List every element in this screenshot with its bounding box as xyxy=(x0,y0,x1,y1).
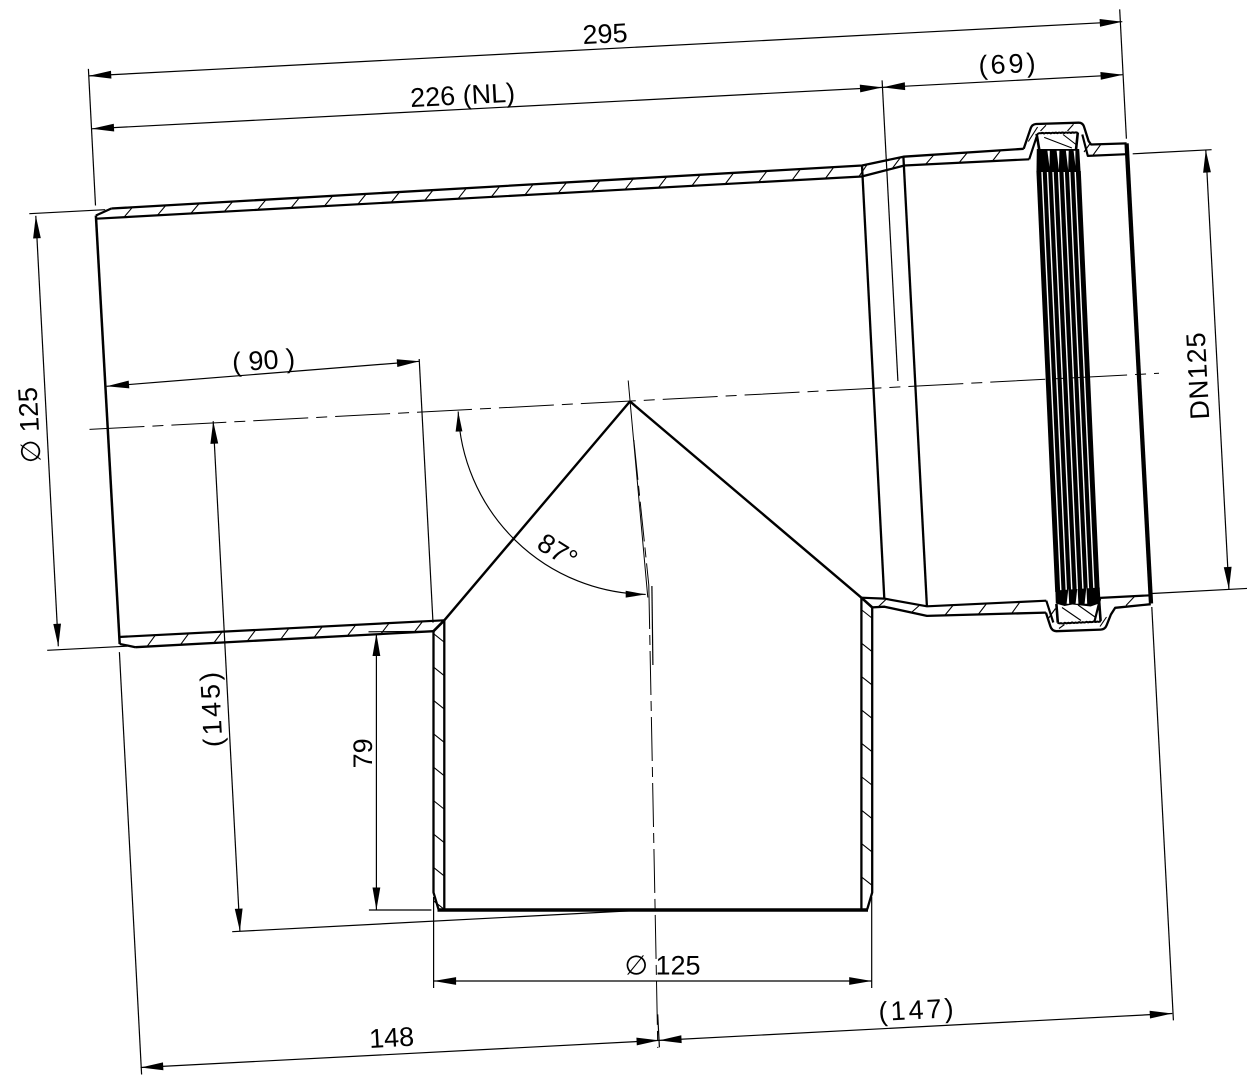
svg-text:(147): (147) xyxy=(878,993,957,1027)
svg-text:79: 79 xyxy=(348,738,378,768)
svg-text:( 90 ): ( 90 ) xyxy=(231,343,296,377)
svg-text:226 (NL): 226 (NL) xyxy=(409,78,515,113)
svg-text:∅ 125: ∅ 125 xyxy=(624,951,700,981)
svg-text:148: 148 xyxy=(368,1022,415,1054)
svg-text:∅ 125: ∅ 125 xyxy=(13,386,47,464)
svg-text:(145): (145) xyxy=(194,668,228,747)
svg-text:DN125: DN125 xyxy=(1181,331,1216,420)
svg-text:(69): (69) xyxy=(978,48,1040,81)
svg-text:295: 295 xyxy=(582,18,629,50)
